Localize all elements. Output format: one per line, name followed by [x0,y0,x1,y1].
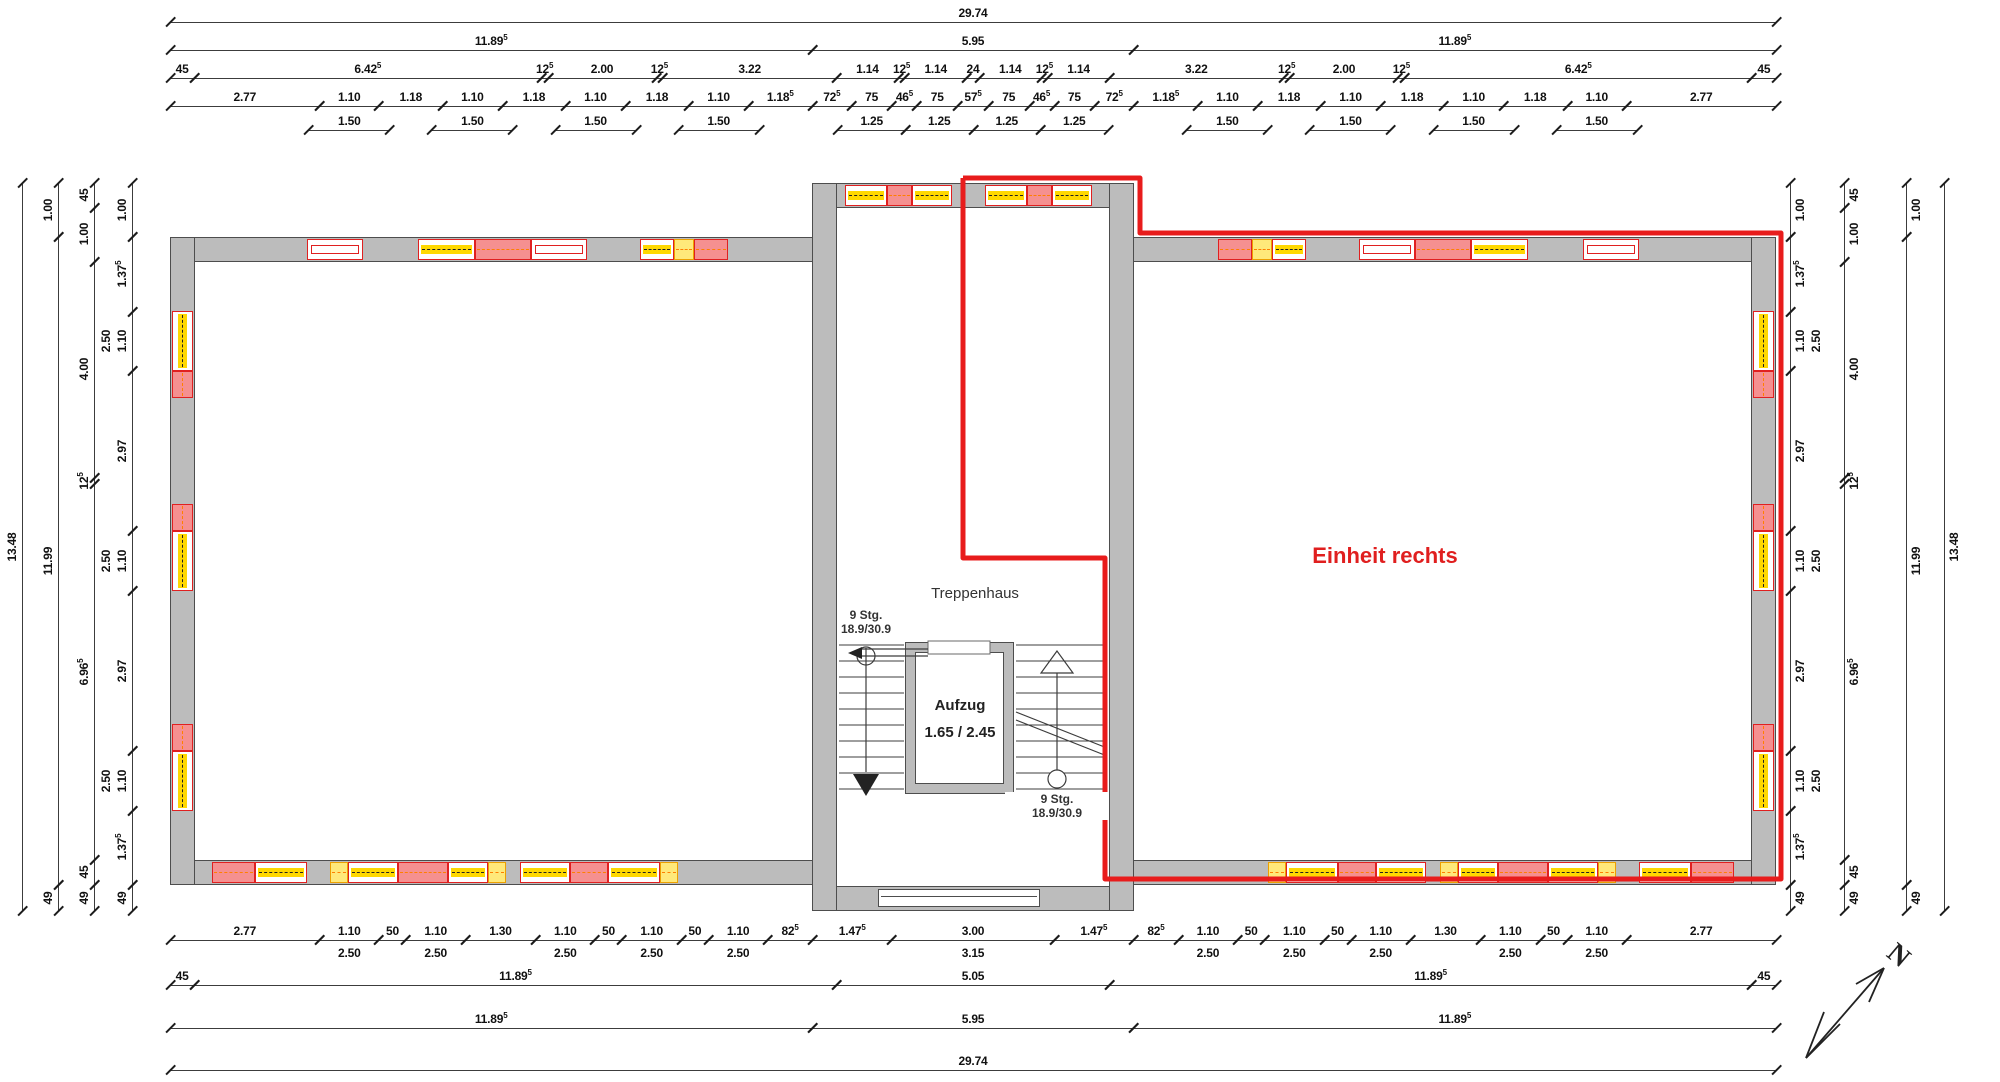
dim-label: 725 [1106,90,1123,104]
window-hatch [520,862,570,883]
wall-axis-dash [1029,195,1050,196]
window-insulation-strip [1474,245,1525,254]
stairs-note-left: 9 Stg. 18.9/30.9 [818,608,914,636]
window-insulation-strip [988,191,1024,200]
wall-infill-salmon [1027,185,1052,206]
dim-label: 1.25 [995,114,1018,128]
window-yellow [330,862,348,883]
dim-label: 75 [1068,90,1081,104]
dim-label: 2.50 [338,946,361,960]
dim-label: 1.14 [856,62,879,76]
dim-label: 1.10 [115,330,129,353]
north-arrow [1806,1024,1840,1058]
dim-label: 2.77 [234,924,257,938]
window-frame-inner [311,245,359,255]
dim-line [555,130,636,131]
dim-label: 1.50 [461,114,484,128]
dim-label: 1.00 [41,199,55,222]
window-insulation-strip [1379,868,1423,877]
dim-label: 1.14 [924,62,947,76]
dim-line [678,130,759,131]
dim-label: 45 [1757,969,1770,983]
window-hatch [1753,311,1774,371]
window-hatch [172,531,193,591]
wall-infill-salmon [1498,862,1548,883]
dim-label: 1.18 [646,90,669,104]
wall-axis-dash [1693,872,1732,873]
north-arrow [1869,968,1884,1002]
dim-label: 2.77 [233,90,256,104]
wall-infill-salmon [1338,862,1376,883]
window-hatch [1753,531,1774,591]
dim-label: 1.10 [1197,924,1220,938]
window-insulation-strip [1289,868,1335,877]
dim-label: 825 [781,924,798,938]
window-hatch [1286,862,1338,883]
window-insulation-strip [523,868,567,877]
wall-axis-dash [400,872,446,873]
window-yellow [660,862,678,883]
window-hatch [1471,239,1528,260]
dim-line [170,1070,1776,1071]
dim-label: 1.185 [1152,90,1179,104]
window-frame [1583,239,1639,260]
stair-direction-arrow-up [1041,651,1073,673]
dim-label: 2.50 [99,549,113,572]
dim-line [94,183,95,911]
dim-label: 75 [1002,90,1015,104]
dim-label: 45 [1847,189,1861,202]
dim-label: 1.30 [489,924,512,938]
wall-infill-salmon [398,862,448,883]
north-arrow [1806,1012,1824,1058]
dim-label: 1.10 [1369,924,1392,938]
dim-label: 49 [1847,891,1861,904]
window-insulation-strip [1759,534,1768,588]
dim-label: 50 [386,924,399,938]
dim-label: 1.375 [1793,834,1807,861]
wall-axis-dash [572,872,606,873]
wall-axis-dash [1763,373,1764,396]
stairs-count-right: 9 Stg. [1005,792,1109,806]
dim-label: 1.14 [1067,62,1090,76]
dim-label: 49 [1909,891,1923,904]
wall-segment [1109,183,1134,911]
dim-label: 11.99 [1909,547,1923,575]
window-insulation-strip [1551,868,1595,877]
dim-line [170,22,1776,23]
wall-axis-dash [1500,872,1546,873]
entry-door-line [881,896,1037,897]
stairs-ratio-right: 18.9/30.9 [1005,806,1109,820]
window-insulation-strip [848,191,884,200]
wall-infill-salmon [887,185,912,206]
dim-line [132,183,133,911]
dim-label: 1.475 [1080,924,1107,938]
window-hatch [255,862,307,883]
wall-axis-dash [332,872,346,873]
dim-label: 4.00 [1847,358,1861,381]
dim-label: 2.50 [99,330,113,353]
wall-axis-dash [477,249,529,250]
dim-label: 75 [865,90,878,104]
window-hatch [1272,239,1306,260]
window-insulation-strip [1461,868,1495,877]
wall-axis-dash [214,872,253,873]
dim-label: 1.18 [1401,90,1424,104]
dim-label: 2.50 [1197,946,1220,960]
dim-label: 1.10 [1793,330,1807,353]
dim-label: 2.77 [1690,90,1713,104]
unit-label: Einheit rechts [1268,543,1502,569]
dim-label: 11.895 [1414,969,1447,983]
wall-axis-dash [1763,726,1764,749]
dim-line [1310,130,1391,131]
dim-line [170,50,1776,51]
window-dash-line [1462,872,1494,873]
dim-label: 465 [896,90,913,104]
dim-label: 49 [1793,891,1807,904]
dim-line [22,183,23,911]
dim-label: 2.77 [1690,924,1713,938]
dim-label: 49 [77,891,91,904]
dim-label: 1.50 [707,114,730,128]
dim-label: 2.50 [99,769,113,792]
window-hatch [418,239,475,260]
dim-label: 1.10 [461,90,484,104]
window-dash-line [1763,315,1764,367]
dim-label: 3.00 [962,924,985,938]
dim-label: 1.50 [1339,114,1362,128]
staircase-label: Treppenhaus [875,585,1075,602]
window-dash-line [1763,535,1764,587]
dim-label: 45 [77,866,91,879]
wall-infill-salmon [1691,862,1734,883]
window-frame [307,239,363,260]
window-frame-inner [1363,245,1411,255]
dim-label: 45 [176,969,189,983]
wall-axis-dash [676,249,692,250]
dim-label: 2.50 [640,946,663,960]
wall-axis-dash [662,872,676,873]
window-insulation-strip [351,868,395,877]
dim-label: 1.25 [860,114,883,128]
window-dash-line [422,249,471,250]
dim-label: 6.965 [77,659,91,686]
window-hatch [1548,862,1598,883]
dim-label: 1.10 [338,90,361,104]
window-dash-line [182,535,183,587]
dim-label: 45 [1757,62,1770,76]
dim-label: 50 [1331,924,1344,938]
window-dash-line [1380,872,1422,873]
window-hatch [608,862,660,883]
window-insulation-strip [1275,245,1303,254]
dim-label: 1.10 [727,924,750,938]
dim-line [1790,183,1791,911]
wall-axis-dash [1442,872,1456,873]
wall-axis-dash [1340,872,1374,873]
wall-axis-dash [1417,249,1469,250]
dim-label: 1.18 [400,90,423,104]
window-insulation-strip [178,314,187,368]
dim-label: 2.00 [591,62,614,76]
dim-label: 1.50 [1585,114,1608,128]
dim-label: 49 [115,891,129,904]
dim-label: 2.50 [1283,946,1306,960]
dim-label: 2.97 [1793,440,1807,463]
wall-axis-dash [1270,872,1284,873]
wall-infill-salmon [1753,371,1774,398]
dim-label: 6.425 [354,62,381,76]
dim-line [170,106,1776,107]
window-hatch [448,862,488,883]
dim-label: 2.50 [1585,946,1608,960]
window-frame [531,239,587,260]
dim-label: 29.74 [958,6,987,20]
dim-label: 2.50 [1809,769,1823,792]
dim-line [1187,130,1268,131]
window-yellow [1252,239,1272,260]
dim-label: 1.18 [523,90,546,104]
dim-label: 1.10 [424,924,447,938]
window-dash-line [1056,195,1088,196]
dim-label: 49 [41,891,55,904]
dim-line [973,130,1041,131]
window-hatch [912,185,952,206]
dim-label: 45 [1847,866,1861,879]
dim-tick [1386,125,1396,135]
dim-line [432,130,513,131]
window-dash-line [644,249,670,250]
window-dash-line [1290,872,1334,873]
entry-door [878,889,1040,907]
dim-label: 1.25 [928,114,951,128]
dim-label: 5.05 [962,969,985,983]
wall-infill-salmon [1415,239,1471,260]
window-hatch [1753,751,1774,811]
dim-label: 575 [964,90,981,104]
dim-label: 1.10 [338,924,361,938]
dim-label: 6.425 [1565,62,1592,76]
window-insulation-strip [1759,314,1768,368]
window-frame-inner [1587,245,1635,255]
dim-line [170,1028,1776,1029]
dim-label: 1.10 [1283,924,1306,938]
dim-label: 1.185 [767,90,794,104]
window-insulation-strip [1759,754,1768,808]
window-dash-line [182,315,183,367]
window-dash-line [452,872,484,873]
dim-line [905,130,973,131]
north-arrow [1856,968,1884,984]
window-frame-inner [535,245,583,255]
dim-label: 50 [1245,924,1258,938]
dim-label: 13.48 [1947,532,1961,561]
window-dash-line [849,195,883,196]
dim-line [58,183,59,911]
stair-direction-arrow-down [853,774,879,796]
wall-infill-salmon [1753,504,1774,531]
dim-label: 2.97 [115,440,129,463]
dim-label: 50 [688,924,701,938]
dim-label: 11.895 [1439,34,1472,48]
stair-break-line [1016,712,1107,748]
wall-axis-dash [1763,506,1764,529]
dim-label: 6.965 [1847,659,1861,686]
dim-label: 1.475 [839,924,866,938]
window-dash-line [352,872,394,873]
dim-label: 2.50 [1369,946,1392,960]
dim-label: 1.00 [1909,199,1923,222]
dim-label: 1.10 [640,924,663,938]
dim-label: 2.50 [1809,549,1823,572]
wall-axis-dash [182,726,183,749]
dim-label: 465 [1033,90,1050,104]
dim-label: 125 [1847,472,1861,489]
dim-label: 1.14 [999,62,1022,76]
dim-line [1844,183,1845,911]
window-yellow [674,239,694,260]
wall-axis-dash [182,506,183,529]
window-yellow [1598,862,1616,883]
window-yellow [488,862,506,883]
dim-label: 1.10 [1499,924,1522,938]
window-hatch [985,185,1027,206]
dim-label: 4.00 [77,358,91,381]
window-dash-line [916,195,948,196]
stairs-note-right: 9 Stg. 18.9/30.9 [1005,792,1109,820]
dim-label: 2.97 [1793,659,1807,682]
dim-label: 2.00 [1333,62,1356,76]
dim-label: 2.50 [1499,946,1522,960]
wall-axis-dash [889,195,910,196]
plan-overlay: N [0,0,2000,1082]
dim-label: 29.74 [958,1054,987,1068]
wall-axis-dash [1254,249,1270,250]
wall-segment [812,183,837,911]
floorplan-canvas: N 29.7411.8955.9511.895456.4251252.00125… [0,0,2000,1082]
window-yellow [1268,862,1286,883]
dim-label: 1.375 [1793,261,1807,288]
dim-line [1556,130,1637,131]
wall-axis-dash [182,373,183,396]
window-insulation-strip [421,245,472,254]
window-insulation-strip [643,245,671,254]
north-arrow [1806,968,1884,1058]
window-insulation-strip [611,868,657,877]
dim-label: 50 [602,924,615,938]
dim-label: 1.30 [1434,924,1457,938]
window-hatch [1639,862,1691,883]
dim-label: 1.50 [584,114,607,128]
window-dash-line [1763,755,1764,807]
window-dash-line [1475,249,1524,250]
wall-axis-dash [1220,249,1250,250]
dim-label: 2.50 [1809,330,1823,353]
dim-line [1433,130,1514,131]
dim-label: 3.22 [1185,62,1208,76]
wall-axis-dash [490,872,504,873]
dim-label: 2.97 [115,659,129,682]
elevator-label: Aufzug [905,697,1015,714]
window-insulation-strip [1642,868,1688,877]
wall-infill-salmon [172,724,193,751]
dim-label: 2.50 [554,946,577,960]
dim-label: 1.10 [1793,549,1807,572]
dim-label: 1.10 [1216,90,1239,104]
dim-label: 1.10 [1339,90,1362,104]
dim-label: 45 [176,62,189,76]
dim-line [170,78,1776,79]
wall-infill-salmon [475,239,531,260]
window-insulation-strip [915,191,949,200]
stairs-ratio-left: 18.9/30.9 [818,622,914,636]
dim-label: 11.895 [475,1012,508,1026]
elevator-door-arrow [848,647,862,659]
dim-label: 11.895 [499,969,532,983]
dim-label: 5.95 [962,1012,985,1026]
window-dash-line [1552,872,1594,873]
window-insulation-strip [178,534,187,588]
dim-line [1041,130,1109,131]
dim-label: 1.10 [115,549,129,572]
window-dash-line [182,755,183,807]
window-insulation-strip [451,868,485,877]
dim-label: 1.10 [1585,924,1608,938]
dim-line [170,985,1776,986]
elevator-size-label: 1.65 / 2.45 [905,724,1015,741]
dim-line [838,130,906,131]
dim-label: 11.895 [1439,1012,1472,1026]
wall-infill-salmon [172,504,193,531]
window-hatch [845,185,887,206]
dim-label: 1.50 [1216,114,1239,128]
window-hatch [172,751,193,811]
window-dash-line [612,872,656,873]
window-insulation-strip [1055,191,1089,200]
dim-tick [1263,125,1273,135]
wall-infill-salmon [570,862,608,883]
dim-label: 825 [1147,924,1164,938]
dim-label: 11.895 [475,34,508,48]
dim-label: 1.10 [584,90,607,104]
dim-line [1906,183,1907,911]
dim-label: 2.50 [727,946,750,960]
dim-label: 1.18 [1278,90,1301,104]
dim-label: 1.25 [1063,114,1086,128]
window-dash-line [1643,872,1687,873]
wall-axis-dash [696,249,726,250]
unit-boundary-outline [963,178,1781,879]
north-label: N [1881,937,1916,974]
window-insulation-strip [178,754,187,808]
dim-line [309,130,390,131]
window-dash-line [989,195,1023,196]
stairs-count-left: 9 Stg. [818,608,914,622]
dim-label: 1.10 [1585,90,1608,104]
dim-label: 1.50 [338,114,361,128]
dim-label: 13.48 [5,532,19,561]
dim-label: 1.18 [1524,90,1547,104]
stair-break-line [1016,720,1107,756]
window-dash-line [259,872,303,873]
dim-label: 1.50 [1462,114,1485,128]
walkline-start-circle-right [1048,770,1066,788]
window-hatch [640,239,674,260]
dim-label: 1.00 [115,199,129,222]
window-hatch [1376,862,1426,883]
